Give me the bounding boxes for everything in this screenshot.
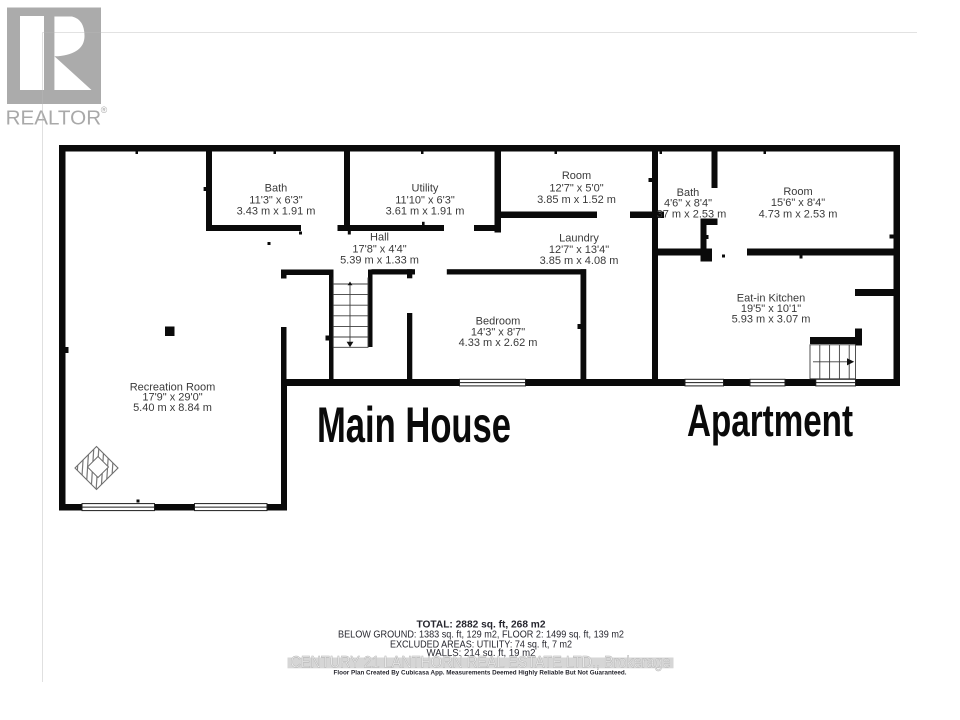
svg-text:Apartment: Apartment (687, 396, 853, 446)
svg-text:3.43 m x 1.91 m: 3.43 m x 1.91 m (237, 206, 316, 218)
svg-text:12'7" x 5'0": 12'7" x 5'0" (549, 182, 603, 194)
svg-text:Laundry: Laundry (559, 233, 599, 245)
svg-text:11'10" x 6'3": 11'10" x 6'3" (395, 194, 455, 206)
svg-text:5.40 m x 8.84 m: 5.40 m x 8.84 m (133, 402, 212, 414)
svg-text:3.85 m x 1.52 m: 3.85 m x 1.52 m (537, 194, 616, 206)
svg-text:17'8" x 4'4": 17'8" x 4'4" (352, 243, 406, 255)
svg-text:37 m x 2.53 m: 37 m x 2.53 m (657, 209, 727, 221)
svg-text:Utility: Utility (412, 183, 439, 195)
svg-text:Hall: Hall (370, 231, 389, 243)
svg-text:Floor Plan Created By Cubicasa: Floor Plan Created By Cubicasa App. Meas… (334, 670, 627, 677)
svg-text:REALTOR: REALTOR (6, 108, 102, 130)
svg-text:15'6" x 8'4": 15'6" x 8'4" (771, 197, 825, 209)
svg-text:11'3" x 6'3": 11'3" x 6'3" (249, 194, 302, 206)
svg-text:®: ® (101, 105, 108, 115)
svg-text:4.73 m x 2.53 m: 4.73 m x 2.53 m (759, 208, 838, 220)
svg-text:Bath: Bath (265, 183, 288, 195)
svg-text:3.85 m x 4.08 m: 3.85 m x 4.08 m (540, 255, 619, 267)
svg-text:Room: Room (562, 170, 591, 182)
svg-text:Main House: Main House (317, 398, 511, 454)
svg-text:5.93 m x 3.07 m: 5.93 m x 3.07 m (732, 314, 811, 326)
svg-text:5.39 m x 1.33 m: 5.39 m x 1.33 m (340, 255, 419, 267)
svg-text:4.33 m x 2.62 m: 4.33 m x 2.62 m (459, 337, 538, 349)
svg-text:3.61 m x 1.91 m: 3.61 m x 1.91 m (386, 206, 465, 218)
